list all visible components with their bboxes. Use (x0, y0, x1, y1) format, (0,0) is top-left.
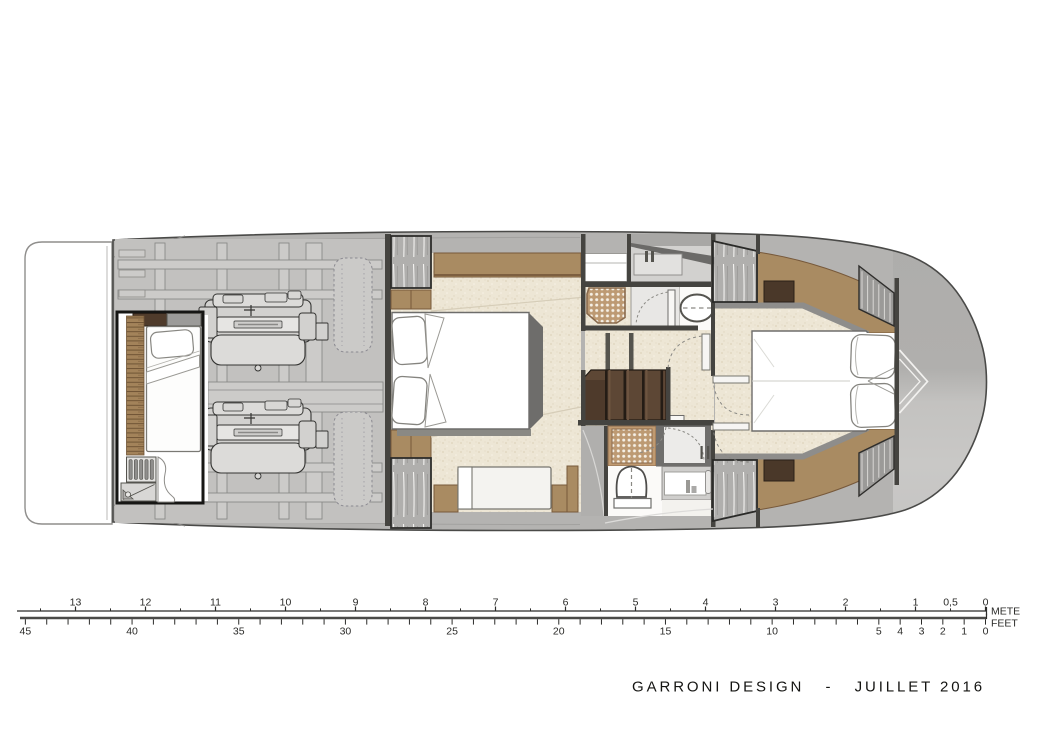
svg-text:1: 1 (961, 626, 967, 638)
svg-text:FEET: FEET (991, 618, 1018, 630)
svg-text:40: 40 (126, 626, 138, 638)
svg-text:0,5: 0,5 (943, 597, 958, 609)
svg-text:10: 10 (280, 597, 292, 609)
svg-text:20: 20 (553, 626, 565, 638)
svg-text:7: 7 (493, 597, 499, 609)
svg-text:2: 2 (940, 626, 946, 638)
svg-text:8: 8 (423, 597, 429, 609)
svg-text:4: 4 (897, 626, 903, 638)
svg-text:1: 1 (913, 597, 919, 609)
svg-text:METE: METE (991, 606, 1020, 618)
svg-text:GARRONI DESIGN - JUILLET 2: GARRONI DESIGN - JUILLET 2016 (632, 679, 985, 696)
svg-text:5: 5 (633, 597, 639, 609)
svg-text:15: 15 (660, 626, 672, 638)
svg-text:12: 12 (140, 597, 152, 609)
svg-text:6: 6 (563, 597, 569, 609)
svg-text:11: 11 (210, 597, 221, 609)
svg-text:5: 5 (876, 626, 882, 638)
svg-text:2: 2 (843, 597, 849, 609)
svg-text:13: 13 (70, 597, 82, 609)
svg-text:10: 10 (766, 626, 778, 638)
svg-text:0: 0 (983, 626, 989, 638)
svg-text:3: 3 (773, 597, 779, 609)
svg-text:35: 35 (233, 626, 245, 638)
svg-text:0: 0 (983, 597, 989, 609)
svg-text:9: 9 (353, 597, 359, 609)
svg-text:4: 4 (703, 597, 709, 609)
svg-text:25: 25 (446, 626, 458, 638)
svg-text:3: 3 (919, 626, 925, 638)
svg-text:30: 30 (340, 626, 352, 638)
svg-text:45: 45 (20, 626, 32, 638)
